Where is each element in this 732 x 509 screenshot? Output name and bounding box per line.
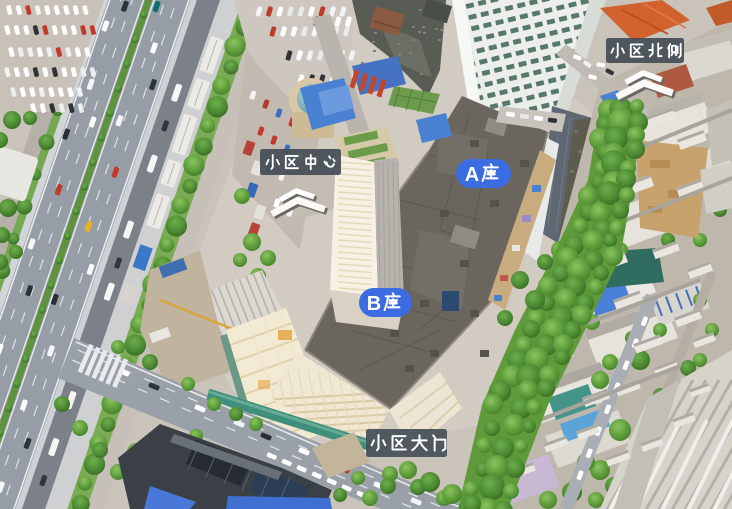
svg-text:B: B bbox=[367, 293, 381, 315]
svg-text:A: A bbox=[465, 164, 479, 186]
